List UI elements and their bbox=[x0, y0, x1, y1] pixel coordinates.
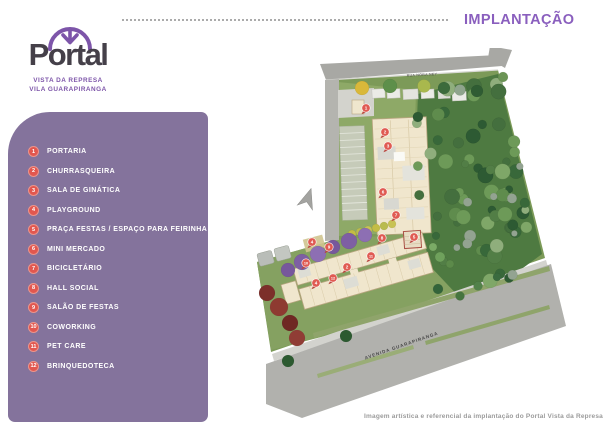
legend-item: 7BICICLETÁRIO bbox=[28, 259, 208, 279]
legend-item: 5PRAÇA FESTAS / ESPAÇO PARA FEIRINHA bbox=[28, 220, 208, 240]
tree bbox=[418, 80, 431, 93]
bush bbox=[380, 222, 388, 230]
parking-lot bbox=[339, 126, 367, 221]
marker-number: 6 bbox=[382, 190, 385, 195]
forest-tree bbox=[433, 135, 443, 145]
legend-item-number: 3 bbox=[28, 185, 39, 196]
forest-tree bbox=[433, 212, 442, 221]
forest-tree bbox=[507, 220, 518, 231]
legend-item-number: 10 bbox=[28, 322, 39, 333]
legend-item-number: 2 bbox=[28, 166, 39, 177]
marker-number: 2 bbox=[384, 130, 387, 135]
legend-item-label: PET CARE bbox=[47, 343, 86, 350]
forest-tree bbox=[453, 137, 464, 148]
tree bbox=[471, 85, 483, 97]
red-tree bbox=[270, 298, 288, 316]
forest-tree bbox=[491, 84, 506, 99]
forest-tree bbox=[413, 112, 423, 122]
legend-item-number: 8 bbox=[28, 283, 39, 294]
legend-item-number: 12 bbox=[28, 361, 39, 372]
tree bbox=[429, 243, 437, 251]
marker-number: 3 bbox=[387, 144, 390, 149]
legend-item-number: 6 bbox=[28, 244, 39, 255]
forest-tree bbox=[508, 270, 518, 280]
legend-item-label: SALA DE GINÁTICA bbox=[47, 187, 120, 194]
bush bbox=[372, 224, 380, 232]
legend-item-number: 11 bbox=[28, 341, 39, 352]
purple-tree bbox=[341, 233, 357, 249]
tree bbox=[438, 82, 450, 94]
logo-name: Portal bbox=[12, 39, 124, 70]
forest-tree bbox=[511, 230, 517, 236]
purple-tree bbox=[310, 246, 326, 262]
page-title: IMPLANTAÇÃO bbox=[464, 12, 574, 28]
legend-item: 6MINI MERCADO bbox=[28, 240, 208, 260]
marker-number: 5 bbox=[413, 235, 416, 240]
legend-item: 12BRINQUEDOTECA bbox=[28, 357, 208, 377]
legend-item: 9SALÃO DE FESTAS bbox=[28, 298, 208, 318]
forest-tree bbox=[509, 147, 519, 157]
brochure-page: Portal VISTA DA REPRESA VILA GUARAPIRANG… bbox=[0, 0, 608, 432]
logo-subtitle-1: VISTA DA REPRESA bbox=[12, 77, 124, 84]
forest-tree bbox=[453, 244, 460, 251]
forest-tree bbox=[520, 198, 530, 208]
forest-tree bbox=[508, 135, 520, 147]
red-tree bbox=[289, 330, 305, 346]
purple-tree bbox=[281, 263, 295, 277]
tree bbox=[446, 260, 454, 268]
marker-number: 10 bbox=[304, 262, 308, 266]
legend-item: 8HALL SOCIAL bbox=[28, 279, 208, 299]
legend-item-label: CHURRASQUEIRA bbox=[47, 168, 115, 175]
tree bbox=[455, 85, 466, 96]
legend-item-number: 4 bbox=[28, 205, 39, 216]
forest-tree bbox=[498, 207, 513, 222]
forest-tree bbox=[490, 239, 504, 253]
forest-tree bbox=[516, 163, 523, 170]
forest-tree bbox=[463, 239, 473, 249]
forest-tree bbox=[495, 164, 511, 180]
marker-number: 8 bbox=[381, 236, 384, 241]
forest-tree bbox=[432, 108, 445, 121]
forest-tree bbox=[413, 161, 422, 170]
forest-tree bbox=[425, 148, 437, 160]
marker-number: 9 bbox=[328, 245, 331, 250]
forest-tree bbox=[438, 154, 453, 169]
marker-number: 4 bbox=[311, 240, 314, 245]
legend-item: 3SALA DE GINÁTICA bbox=[28, 181, 208, 201]
forest-tree bbox=[463, 198, 472, 207]
tree bbox=[340, 330, 352, 342]
legend-item-label: PRAÇA FESTAS / ESPAÇO PARA FEIRINHA bbox=[47, 226, 207, 233]
legend-item-number: 9 bbox=[28, 302, 39, 313]
tree bbox=[498, 72, 508, 82]
legend-item: 4PLAYGROUND bbox=[28, 201, 208, 221]
legend-item: 2CHURRASQUEIRA bbox=[28, 162, 208, 182]
legend-item-label: COWORKING bbox=[47, 324, 96, 331]
marker-number: 12 bbox=[331, 277, 335, 281]
marker-number: 2 bbox=[346, 265, 349, 270]
bush bbox=[388, 220, 396, 228]
marker-number: 1 bbox=[365, 106, 368, 111]
forest-tree bbox=[478, 120, 487, 129]
tree bbox=[493, 273, 501, 281]
forest-tree bbox=[490, 193, 497, 200]
logo: Portal VISTA DA REPRESA VILA GUARAPIRANG… bbox=[8, 8, 128, 104]
tree bbox=[282, 355, 294, 367]
forest-tree bbox=[521, 222, 532, 233]
legend-item-label: PORTARIA bbox=[47, 148, 87, 155]
forest-tree bbox=[414, 190, 424, 200]
tree bbox=[433, 284, 443, 294]
tree bbox=[456, 292, 465, 301]
legend-item-label: HALL SOCIAL bbox=[47, 285, 99, 292]
legend-list: 1PORTARIA2CHURRASQUEIRA3SALA DE GINÁTICA… bbox=[28, 142, 208, 376]
forest-area bbox=[414, 74, 542, 300]
red-tree bbox=[282, 315, 298, 331]
forest-tree bbox=[507, 194, 517, 204]
legend-item-label: MINI MERCADO bbox=[47, 246, 105, 253]
image-caption: Imagem artística e referencial da implan… bbox=[364, 413, 603, 420]
legend-item-number: 1 bbox=[28, 146, 39, 157]
marker-number: 7 bbox=[395, 213, 398, 218]
north-arrow-icon bbox=[297, 186, 318, 210]
marker-number: 4 bbox=[315, 281, 318, 286]
legend-panel: 1PORTARIA2CHURRASQUEIRA3SALA DE GINÁTICA… bbox=[8, 112, 208, 422]
legend-item-number: 5 bbox=[28, 224, 39, 235]
legend-item-label: SALÃO DE FESTAS bbox=[47, 304, 119, 311]
forest-tree bbox=[444, 189, 459, 204]
forest-tree bbox=[466, 129, 481, 144]
tree bbox=[355, 81, 369, 95]
legend-item: 1PORTARIA bbox=[28, 142, 208, 162]
legend-item-label: BICICLETÁRIO bbox=[47, 265, 102, 272]
forest-tree bbox=[456, 210, 470, 224]
legend-item-label: PLAYGROUND bbox=[47, 207, 101, 214]
forest-tree bbox=[462, 160, 469, 167]
legend-item-number: 7 bbox=[28, 263, 39, 274]
forest-tree bbox=[492, 118, 505, 131]
dotted-divider bbox=[122, 19, 448, 21]
marker-number: 11 bbox=[369, 255, 373, 259]
legend-item: 10COWORKING bbox=[28, 318, 208, 338]
legend-item: 11PET CARE bbox=[28, 337, 208, 357]
tree bbox=[474, 282, 483, 291]
logo-subtitle-2: VILA GUARAPIRANGA bbox=[12, 86, 124, 93]
site-plan: RUA NORA NEY AVENIDA GUARAPIRANGA bbox=[246, 48, 570, 424]
tree bbox=[383, 79, 397, 93]
purple-tree bbox=[358, 228, 372, 242]
legend-item-label: BRINQUEDOTECA bbox=[47, 363, 115, 370]
forest-tree bbox=[432, 232, 440, 240]
forest-tree bbox=[486, 165, 495, 174]
building-north bbox=[372, 117, 431, 235]
red-tree bbox=[259, 285, 275, 301]
internal-road bbox=[325, 79, 339, 241]
tree bbox=[435, 252, 445, 262]
